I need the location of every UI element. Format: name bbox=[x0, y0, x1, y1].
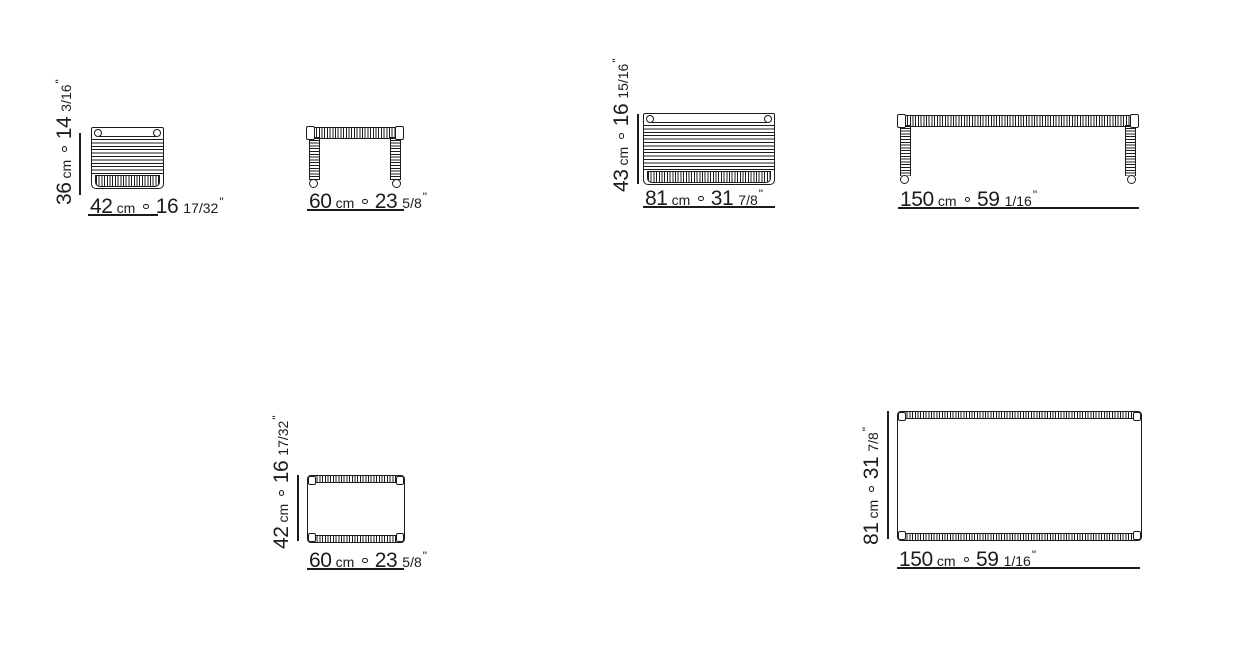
inch-value: 16 bbox=[270, 461, 293, 484]
inch-mark: " bbox=[270, 417, 284, 420]
width-dimension-label: 60cm235/8" bbox=[309, 545, 426, 574]
woven-stripe-texture bbox=[644, 125, 774, 172]
inch-fraction: 15/16 bbox=[615, 64, 631, 99]
inch-fraction: 17/32 bbox=[183, 200, 218, 216]
leg-cap-icon bbox=[306, 126, 315, 140]
inch-mark: " bbox=[860, 428, 874, 431]
corner-knob-icon bbox=[153, 129, 161, 137]
large-table-front-drawing bbox=[898, 115, 1138, 184]
cm-value: 60 bbox=[309, 549, 332, 572]
inch-fraction: 5/8 bbox=[402, 554, 421, 570]
inch-value: 59 bbox=[976, 548, 999, 571]
inch-fraction: 1/16 bbox=[1005, 193, 1032, 209]
inch-value: 31 bbox=[860, 457, 883, 480]
height-dimension-line bbox=[637, 114, 639, 184]
depth-dimension-line bbox=[297, 475, 299, 541]
inch-fraction: 7/8 bbox=[865, 432, 881, 451]
cm-unit: cm bbox=[58, 160, 74, 179]
inch-value: 59 bbox=[977, 188, 1000, 211]
foot-icon bbox=[1127, 175, 1136, 184]
wrapped-leg-texture bbox=[1125, 125, 1136, 176]
depth-dimension-label: 81cm317/8" bbox=[856, 428, 885, 545]
cm-value: 81 bbox=[645, 187, 668, 210]
cm-value: 42 bbox=[90, 195, 113, 218]
ring-separator-icon bbox=[965, 197, 971, 203]
width-dimension-label: 81cm317/8" bbox=[645, 183, 762, 212]
top-rail bbox=[651, 114, 767, 123]
large-ottoman-front-drawing bbox=[643, 113, 775, 185]
corner-leg-icon bbox=[396, 476, 404, 485]
inch-fraction: 5/8 bbox=[402, 195, 421, 211]
inch-fraction: 3/16 bbox=[58, 84, 74, 111]
woven-edge-texture bbox=[904, 412, 1135, 419]
cm-value: 150 bbox=[899, 548, 933, 571]
cm-unit: cm bbox=[615, 147, 631, 166]
dimension-diagram-sheet: 36cm143/16" 42cm1617/32" 60cm235/8" 43cm… bbox=[0, 0, 1254, 657]
wrapped-leg-texture bbox=[390, 137, 401, 180]
inch-mark: " bbox=[423, 190, 426, 204]
leg-cap-icon bbox=[395, 126, 404, 140]
small-ottoman-front-drawing bbox=[91, 127, 164, 189]
cm-unit: cm bbox=[336, 554, 355, 570]
corner-leg-icon bbox=[1133, 531, 1141, 540]
inch-fraction: 7/8 bbox=[738, 192, 757, 208]
woven-edge-texture bbox=[314, 476, 398, 483]
cm-unit: cm bbox=[117, 200, 136, 216]
leg-cap-icon bbox=[1130, 114, 1139, 128]
top-rail bbox=[99, 128, 156, 137]
inch-fraction: 17/32 bbox=[275, 421, 291, 456]
depth-dimension-line bbox=[887, 411, 889, 539]
wrapped-leg-texture bbox=[900, 125, 911, 176]
width-dimension-label: 150cm591/16" bbox=[899, 544, 1035, 573]
tabletop-edge-texture bbox=[307, 127, 403, 139]
ring-separator-icon bbox=[362, 199, 368, 205]
cm-value: 36 bbox=[53, 182, 76, 205]
inch-fraction: 1/16 bbox=[1004, 553, 1031, 569]
inch-mark: " bbox=[1033, 188, 1036, 202]
large-table-top-view-drawing bbox=[897, 411, 1142, 541]
inch-mark: " bbox=[759, 187, 762, 201]
cm-value: 60 bbox=[309, 190, 332, 213]
corner-knob-icon bbox=[646, 115, 654, 123]
width-dimension-label: 60cm235/8" bbox=[309, 186, 426, 215]
corner-leg-icon bbox=[308, 476, 316, 485]
inch-mark: " bbox=[219, 195, 222, 209]
cm-unit: cm bbox=[865, 500, 881, 519]
height-dimension-label: 36cm143/16" bbox=[49, 81, 78, 205]
ring-separator-icon bbox=[869, 486, 875, 492]
inch-value: 23 bbox=[375, 549, 398, 572]
depth-dimension-label: 42cm1617/32" bbox=[266, 417, 295, 549]
inch-mark: " bbox=[1032, 548, 1035, 562]
width-dimension-label: 42cm1617/32" bbox=[90, 191, 222, 220]
ring-separator-icon bbox=[362, 558, 368, 564]
base-fringe-texture bbox=[647, 171, 771, 183]
cm-unit: cm bbox=[938, 193, 957, 209]
inch-mark: " bbox=[610, 60, 624, 63]
cm-unit: cm bbox=[336, 195, 355, 211]
tabletop-edge-texture bbox=[898, 115, 1138, 127]
woven-edge-texture bbox=[314, 535, 398, 542]
small-table-front-drawing bbox=[307, 127, 403, 188]
small-table-top-view-drawing bbox=[307, 475, 405, 543]
ring-separator-icon bbox=[62, 146, 68, 152]
foot-icon bbox=[900, 175, 909, 184]
inch-value: 23 bbox=[375, 190, 398, 213]
cm-value: 81 bbox=[860, 522, 883, 545]
ring-separator-icon bbox=[964, 557, 970, 563]
ring-separator-icon bbox=[698, 196, 704, 202]
cm-value: 42 bbox=[270, 526, 293, 549]
wrapped-leg-texture bbox=[309, 137, 320, 180]
inch-value: 16 bbox=[610, 104, 633, 127]
width-dimension-label: 150cm591/16" bbox=[900, 184, 1036, 213]
corner-knob-icon bbox=[764, 115, 772, 123]
corner-leg-icon bbox=[898, 531, 906, 540]
height-dimension-line bbox=[79, 133, 81, 195]
cm-unit: cm bbox=[937, 553, 956, 569]
ring-separator-icon bbox=[279, 490, 285, 496]
cm-value: 43 bbox=[610, 169, 633, 192]
cm-unit: cm bbox=[275, 504, 291, 523]
corner-leg-icon bbox=[396, 533, 404, 542]
cm-value: 150 bbox=[900, 188, 934, 211]
corner-leg-icon bbox=[898, 412, 906, 421]
leg-cap-icon bbox=[897, 114, 906, 128]
inch-value: 31 bbox=[711, 187, 734, 210]
corner-leg-icon bbox=[308, 533, 316, 542]
corner-leg-icon bbox=[1133, 412, 1141, 421]
inch-value: 16 bbox=[156, 195, 179, 218]
woven-stripe-texture bbox=[92, 139, 163, 176]
inch-mark: " bbox=[423, 549, 426, 563]
base-fringe-texture bbox=[95, 175, 160, 187]
inch-value: 14 bbox=[53, 117, 76, 140]
corner-knob-icon bbox=[94, 129, 102, 137]
height-dimension-label: 43cm1615/16" bbox=[606, 60, 635, 192]
ring-separator-icon bbox=[143, 204, 149, 210]
cm-unit: cm bbox=[672, 192, 691, 208]
ring-separator-icon bbox=[619, 133, 625, 139]
woven-edge-texture bbox=[904, 533, 1135, 540]
